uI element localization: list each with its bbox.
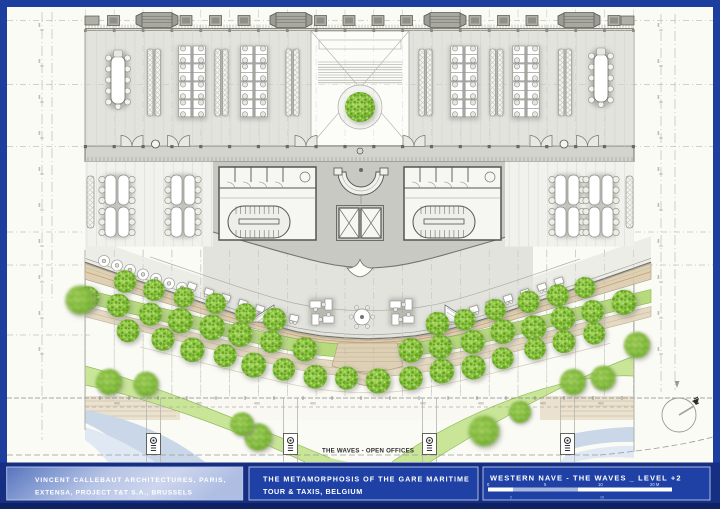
svg-text:400: 400 bbox=[196, 402, 202, 406]
svg-text:400: 400 bbox=[310, 402, 316, 406]
svg-text:THE WAVES - OPEN OFFICES: THE WAVES - OPEN OFFICES bbox=[322, 448, 414, 455]
svg-text:400: 400 bbox=[478, 402, 484, 406]
svg-text:10: 10 bbox=[600, 496, 604, 500]
svg-text:400: 400 bbox=[254, 402, 260, 406]
svg-text:20 M: 20 M bbox=[650, 482, 660, 487]
svg-text:400: 400 bbox=[114, 402, 120, 406]
svg-text:VINCENT CALLEBAUT ARCHITECTURE: VINCENT CALLEBAUT ARCHITECTURES, PARIS, bbox=[35, 477, 226, 484]
svg-text:THE METAMORPHOSIS OF THE GARE: THE METAMORPHOSIS OF THE GARE MARITIME bbox=[263, 475, 470, 484]
svg-text:400: 400 bbox=[540, 402, 546, 406]
svg-text:2: 2 bbox=[510, 496, 512, 500]
svg-text:400: 400 bbox=[598, 402, 604, 406]
svg-text:EXTENSA, PROJECT T&T S.A., BRU: EXTENSA, PROJECT T&T S.A., BRUSSELS bbox=[35, 490, 193, 497]
svg-text:TOUR & TAXIS, BELGIUM: TOUR & TAXIS, BELGIUM bbox=[263, 487, 363, 496]
svg-text:10: 10 bbox=[598, 482, 603, 487]
